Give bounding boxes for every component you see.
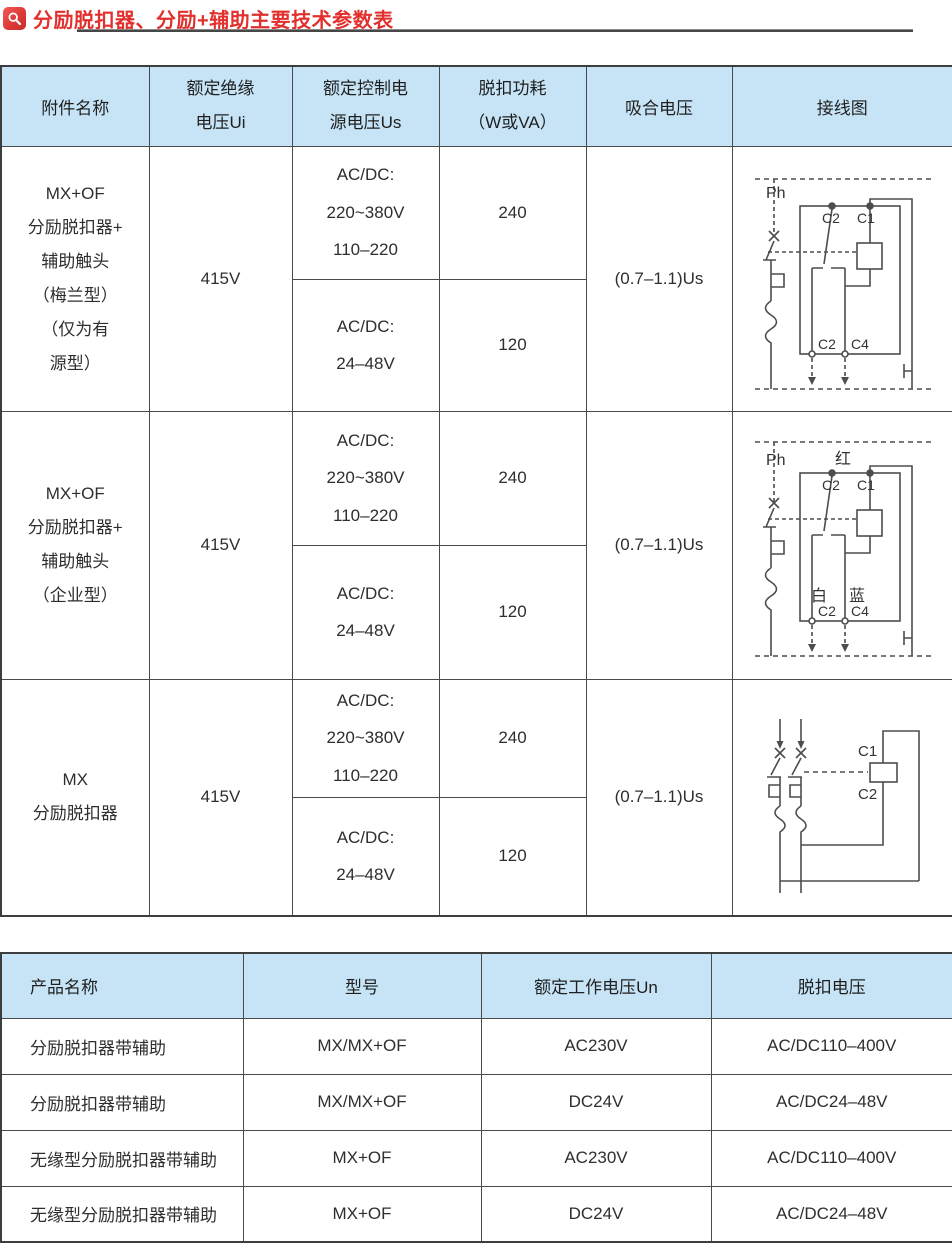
t2-header-row: 产品名称 型号 额定工作电压Un 脱扣电压 xyxy=(1,953,952,1018)
t2-cell-trip-voltage: AC/DC24–48V xyxy=(711,1074,952,1130)
diagram-label-c1-top: C1 xyxy=(857,477,875,493)
t1-cell-power-high: 240 xyxy=(439,146,586,279)
t1-cell-power-low: 120 xyxy=(439,545,586,679)
t2-header-working-voltage: 额定工作电压Un xyxy=(481,953,711,1018)
diagram-label-ph: Ph xyxy=(766,452,786,469)
t1-cell-power-low: 120 xyxy=(439,797,586,916)
t1-cell-pickup: (0.7–1.1)Us xyxy=(586,679,732,916)
t2-row: 分励脱扣器带辅助 MX/MX+OF DC24V AC/DC24–48V xyxy=(1,1074,952,1130)
diagram-label-c2-bottom: C2 xyxy=(818,336,836,352)
diagram-label-ph: Ph xyxy=(766,185,786,202)
t2-cell-model: MX+OF xyxy=(243,1186,481,1242)
magnifier-icon xyxy=(3,7,26,30)
diagram-label-c2-top: C2 xyxy=(822,477,840,493)
wiring-diagram-cell-1: Ph C2 C1 C2 C4 xyxy=(732,146,952,411)
tech-parameters-table: 附件名称 额定绝缘 电压Ui 额定控制电 源电压Us 脱扣功耗 （W或VA） 吸… xyxy=(0,65,952,917)
t1-header-pickup-voltage: 吸合电压 xyxy=(586,66,732,146)
wiring-diagram-cell-2: Ph 红 C2 C1 白 蓝 C2 C4 xyxy=(732,411,952,679)
t1-cell-pickup: (0.7–1.1)Us xyxy=(586,411,732,679)
t1-header-trip-power: 脱扣功耗 （W或VA） xyxy=(439,66,586,146)
t1-cell-us-low: AC/DC: 24–48V xyxy=(292,545,439,679)
diagram-label-c1: C1 xyxy=(858,743,877,760)
t1-row-1a: MX+OF 分励脱扣器+ 辅助触头 （梅兰型） （仅为有 源型） 415V AC… xyxy=(1,146,952,279)
t1-cell-us-high: AC/DC: 220~380V 110–220 xyxy=(292,146,439,279)
t2-row: 无缘型分励脱扣器带辅助 MX+OF AC230V AC/DC110–400V xyxy=(1,1130,952,1186)
t2-row: 分励脱扣器带辅助 MX/MX+OF AC230V AC/DC110–400V xyxy=(1,1018,952,1074)
t1-header-accessory-name: 附件名称 xyxy=(1,66,149,146)
t1-header-row: 附件名称 额定绝缘 电压Ui 额定控制电 源电压Us 脱扣功耗 （W或VA） 吸… xyxy=(1,66,952,146)
t1-cell-name: MX+OF 分励脱扣器+ 辅助触头 （企业型） xyxy=(1,411,149,679)
t1-header-control-voltage: 额定控制电 源电压Us xyxy=(292,66,439,146)
t2-cell-product-name: 无缘型分励脱扣器带辅助 xyxy=(1,1186,243,1242)
t1-cell-us-low: AC/DC: 24–48V xyxy=(292,797,439,916)
diagram-label-c2-bottom: C2 xyxy=(818,603,836,619)
t2-cell-model: MX+OF xyxy=(243,1130,481,1186)
t1-cell-us-low: AC/DC: 24–48V xyxy=(292,279,439,411)
t1-cell-name: MX+OF 分励脱扣器+ 辅助触头 （梅兰型） （仅为有 源型） xyxy=(1,146,149,411)
wiring-diagram-2: Ph 红 C2 C1 白 蓝 C2 C4 xyxy=(737,418,948,673)
t2-cell-working-voltage: AC230V xyxy=(481,1018,711,1074)
diagram-label-c1-top: C1 xyxy=(857,210,875,226)
t1-cell-power-high: 240 xyxy=(439,411,586,545)
t1-cell-pickup: (0.7–1.1)Us xyxy=(586,146,732,411)
t2-cell-model: MX/MX+OF xyxy=(243,1018,481,1074)
product-voltage-table: 产品名称 型号 额定工作电压Un 脱扣电压 分励脱扣器带辅助 MX/MX+OF … xyxy=(0,952,952,1243)
diagram-label-c2-top: C2 xyxy=(822,210,840,226)
t1-header-wiring-diagram: 接线图 xyxy=(732,66,952,146)
t2-cell-model: MX/MX+OF xyxy=(243,1074,481,1130)
t2-header-product-name: 产品名称 xyxy=(1,953,243,1018)
t1-cell-us-high: AC/DC: 220~380V 110–220 xyxy=(292,411,439,545)
t2-header-model: 型号 xyxy=(243,953,481,1018)
diagram-label-c4-bottom: C4 xyxy=(851,336,869,352)
t1-cell-name: MX 分励脱扣器 xyxy=(1,679,149,916)
t1-row-3a: MX 分励脱扣器 415V AC/DC: 220~380V 110–220 24… xyxy=(1,679,952,797)
diagram-label-c4-bottom: C4 xyxy=(851,603,869,619)
diagram-label-c2: C2 xyxy=(858,786,877,803)
t2-cell-product-name: 分励脱扣器带辅助 xyxy=(1,1074,243,1130)
t2-cell-trip-voltage: AC/DC110–400V xyxy=(711,1130,952,1186)
t2-cell-trip-voltage: AC/DC110–400V xyxy=(711,1018,952,1074)
t2-cell-working-voltage: AC230V xyxy=(481,1130,711,1186)
wiring-diagram-cell-3: C1 C2 xyxy=(732,679,952,916)
t1-header-insulation-voltage: 额定绝缘 电压Ui xyxy=(149,66,292,146)
t2-cell-trip-voltage: AC/DC24–48V xyxy=(711,1186,952,1242)
diagram-label-red-wire: 红 xyxy=(835,450,851,468)
title-underline xyxy=(77,29,913,32)
t2-row: 无缘型分励脱扣器带辅助 MX+OF DC24V AC/DC24–48V xyxy=(1,1186,952,1242)
t1-cell-ui: 415V xyxy=(149,146,292,411)
t1-cell-ui: 415V xyxy=(149,411,292,679)
t1-cell-us-high: AC/DC: 220~380V 110–220 xyxy=(292,679,439,797)
t2-cell-product-name: 分励脱扣器带辅助 xyxy=(1,1018,243,1074)
t2-header-trip-voltage: 脱扣电压 xyxy=(711,953,952,1018)
t1-cell-power-low: 120 xyxy=(439,279,586,411)
wiring-diagram-1: Ph C2 C1 C2 C4 xyxy=(737,151,948,406)
document-page: 分励脱扣器、分励+辅助主要技术参数表 附件名称 额定绝缘 电压Ui 额定控制电 … xyxy=(0,0,952,1242)
t2-cell-product-name: 无缘型分励脱扣器带辅助 xyxy=(1,1130,243,1186)
t1-row-2a: MX+OF 分励脱扣器+ 辅助触头 （企业型） 415V AC/DC: 220~… xyxy=(1,411,952,545)
t2-cell-working-voltage: DC24V xyxy=(481,1186,711,1242)
wiring-diagram-3: C1 C2 xyxy=(737,685,948,910)
t2-cell-working-voltage: DC24V xyxy=(481,1074,711,1130)
t1-cell-power-high: 240 xyxy=(439,679,586,797)
t1-cell-ui: 415V xyxy=(149,679,292,916)
